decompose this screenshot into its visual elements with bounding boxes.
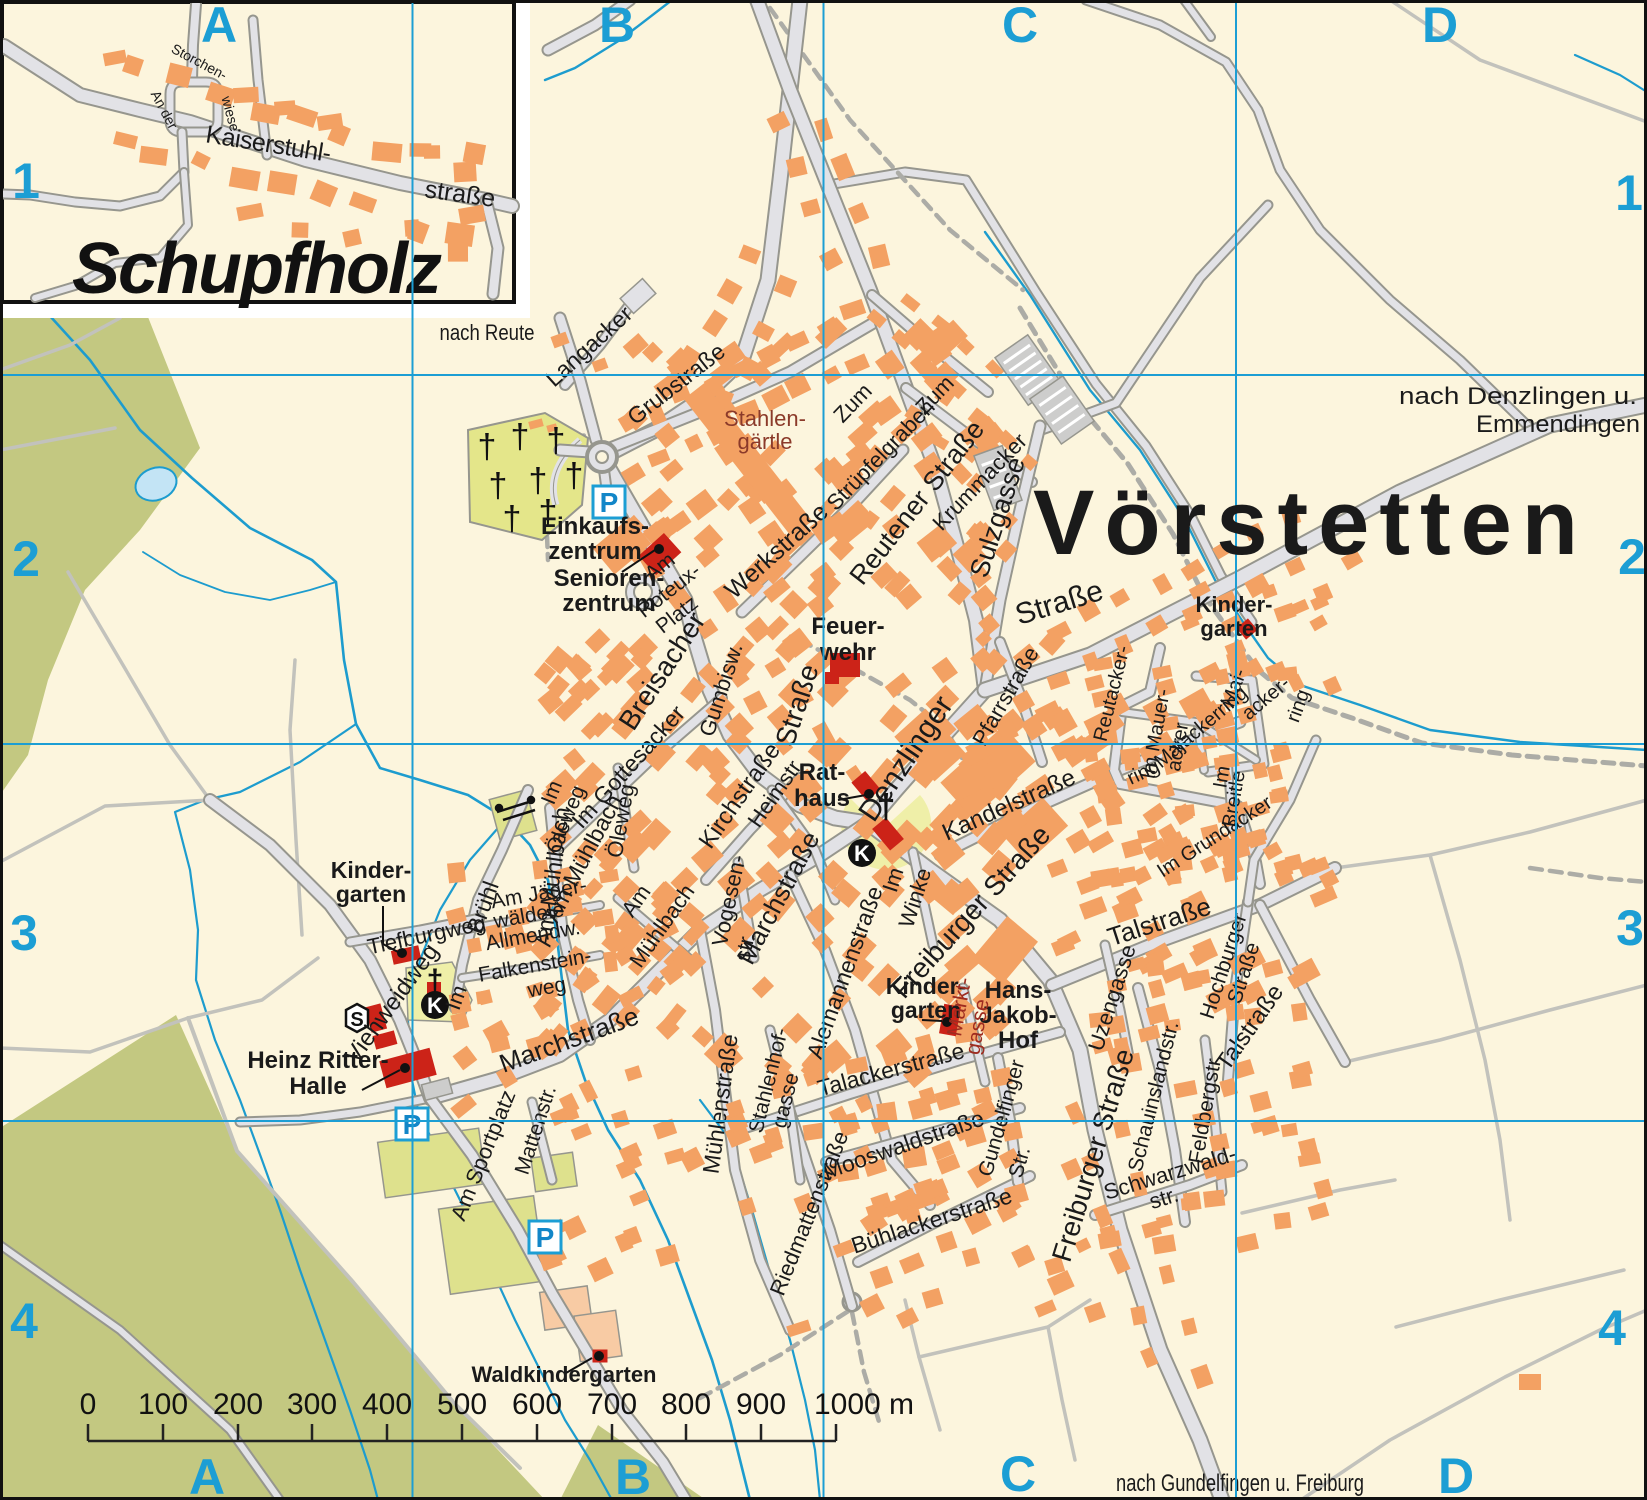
svg-text:C: C (1002, 0, 1038, 53)
svg-text:nach Gundelfingen u. Freiburg: nach Gundelfingen u. Freiburg (1116, 1470, 1364, 1497)
svg-text:Rat-: Rat- (799, 759, 846, 786)
svg-text:P: P (536, 1222, 555, 1253)
svg-text:D: D (1438, 1448, 1474, 1500)
svg-text:Waldkindergarten: Waldkindergarten (472, 1362, 657, 1387)
svg-text:nach Reute: nach Reute (440, 320, 535, 345)
svg-text:1: 1 (12, 153, 40, 209)
svg-text:Einkaufs-: Einkaufs- (541, 513, 649, 540)
svg-text:†: † (503, 500, 522, 538)
svg-text:4: 4 (1598, 1300, 1626, 1356)
svg-text:†: † (478, 428, 497, 466)
svg-text:C: C (1000, 1446, 1036, 1500)
svg-text:†: † (511, 418, 530, 456)
svg-text:K: K (854, 841, 870, 866)
svg-text:B: B (615, 1449, 651, 1500)
svg-text:A: A (189, 1449, 225, 1500)
svg-text:Hans-: Hans- (985, 977, 1052, 1004)
svg-text:Emmendingen: Emmendingen (1476, 411, 1640, 438)
svg-text:†: † (547, 422, 566, 460)
svg-text:600: 600 (512, 1388, 562, 1421)
svg-text:gärtle: gärtle (737, 429, 792, 454)
svg-text:2: 2 (12, 531, 40, 587)
svg-text:zentrum: zentrum (548, 538, 641, 565)
svg-text:4: 4 (10, 1293, 38, 1349)
svg-text:2: 2 (1618, 529, 1646, 585)
svg-text:Vörstetten: Vörstetten (1033, 472, 1588, 574)
svg-text:Schupfholz: Schupfholz (72, 229, 442, 309)
svg-text:Feuer-: Feuer- (811, 613, 884, 640)
svg-text:A: A (201, 0, 237, 53)
svg-text:Senioren-: Senioren- (554, 565, 665, 592)
svg-text:1000 m: 1000 m (814, 1388, 914, 1421)
svg-text:D: D (1422, 0, 1458, 53)
svg-text:†: † (565, 457, 584, 495)
svg-text:3: 3 (10, 905, 38, 961)
svg-text:0: 0 (80, 1388, 97, 1421)
svg-text:100: 100 (138, 1388, 188, 1421)
svg-text:zentrum: zentrum (562, 590, 655, 617)
svg-text:500: 500 (437, 1388, 487, 1421)
svg-text:3: 3 (1616, 900, 1644, 956)
svg-text:haus: haus (794, 785, 850, 812)
svg-text:Kinder-: Kinder- (1196, 592, 1273, 617)
svg-text:200: 200 (213, 1388, 263, 1421)
svg-text:700: 700 (587, 1388, 637, 1421)
svg-text:Kinder-: Kinder- (331, 857, 412, 883)
svg-text:Hof: Hof (998, 1027, 1039, 1054)
svg-text:Halle: Halle (289, 1073, 346, 1100)
svg-text:1: 1 (1615, 165, 1643, 221)
svg-text:300: 300 (287, 1388, 337, 1421)
svg-text:B: B (599, 0, 635, 53)
svg-text:nach Denzlingen u.: nach Denzlingen u. (1399, 383, 1637, 410)
svg-text:Heinz Ritter-: Heinz Ritter- (247, 1047, 388, 1074)
svg-text:400: 400 (362, 1388, 412, 1421)
svg-text:wehr: wehr (819, 639, 876, 666)
svg-text:garten: garten (1200, 616, 1267, 641)
svg-text:garten: garten (336, 881, 406, 907)
svg-text:800: 800 (661, 1388, 711, 1421)
svg-text:900: 900 (736, 1388, 786, 1421)
svg-text:Stahlen-: Stahlen- (724, 406, 806, 431)
